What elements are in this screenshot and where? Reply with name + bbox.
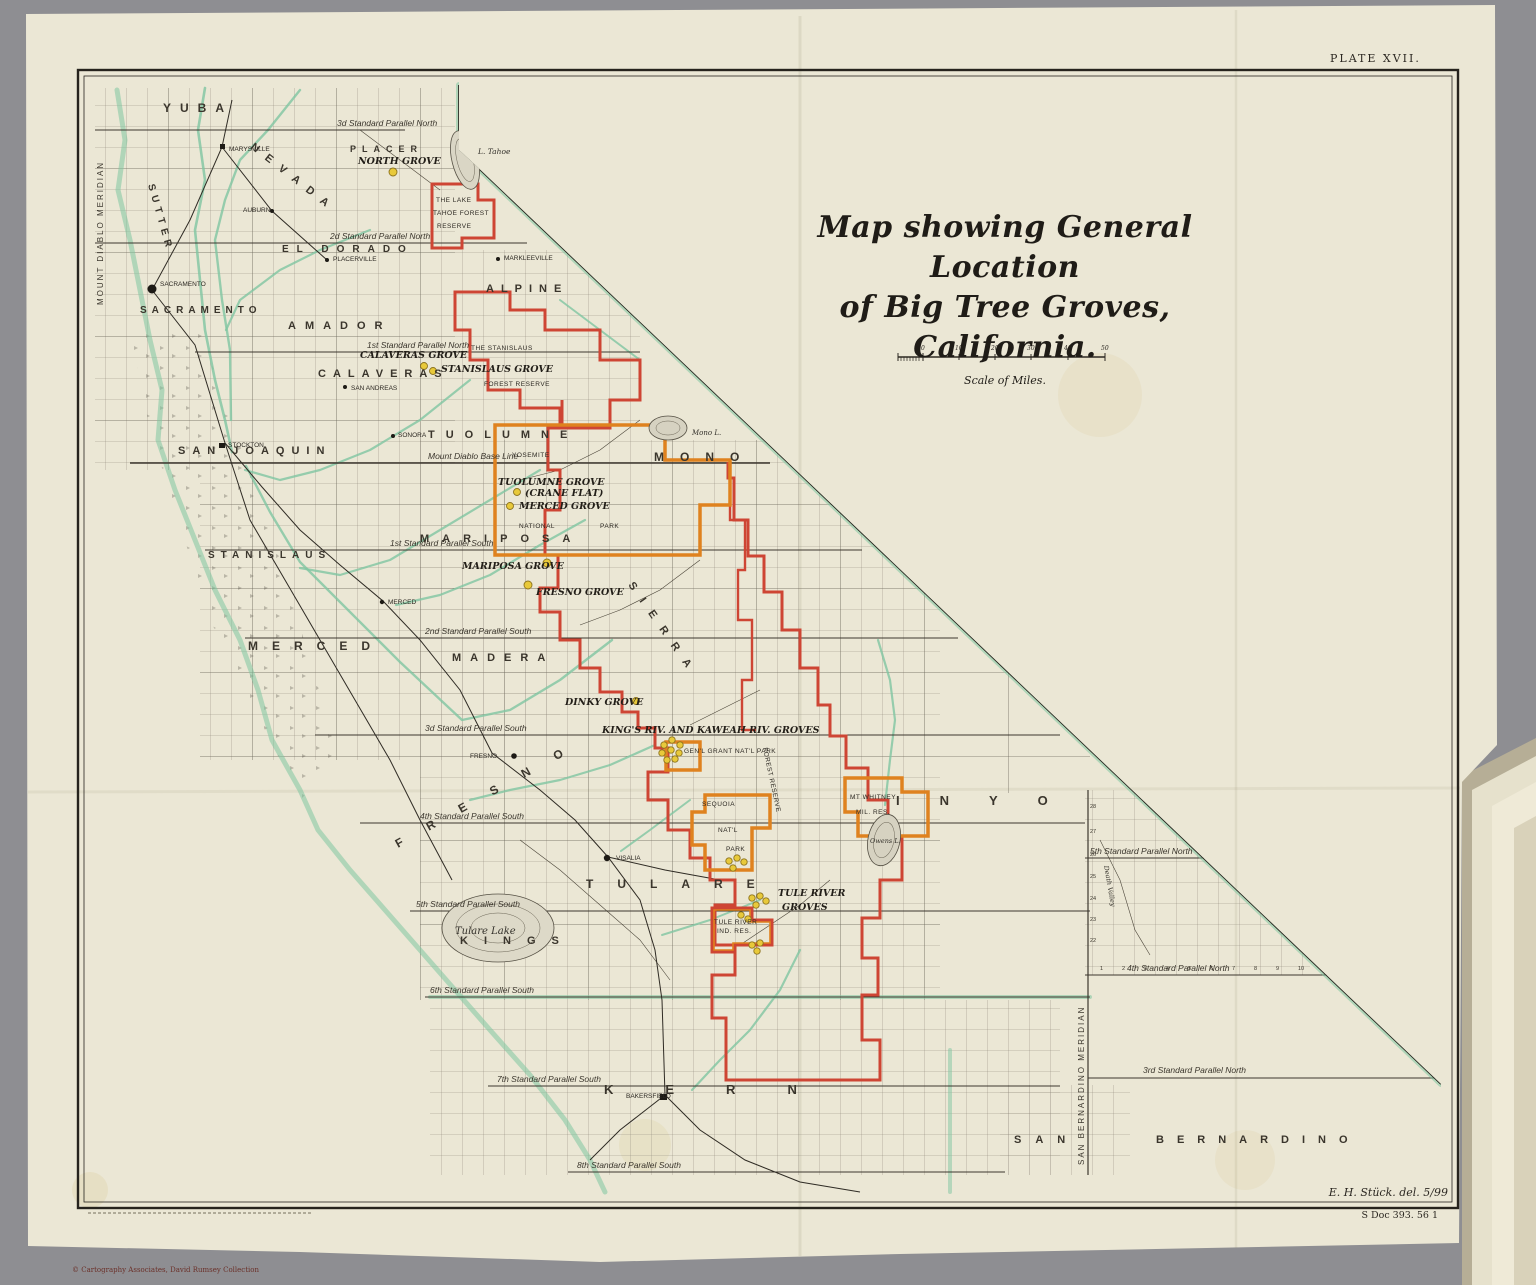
mount-diablo-meridian-label: MOUNT DIABLO MERIDIAN bbox=[96, 161, 105, 305]
owens-lake-label: Owens L. bbox=[870, 837, 901, 845]
tahoe-reserve-label-2: TAHOE FOREST bbox=[433, 210, 489, 217]
tule-river-groves-label-1: TULE RIVER bbox=[778, 888, 846, 899]
county-eldorado: EL DORADO bbox=[282, 244, 414, 255]
svg-text:22: 22 bbox=[1090, 938, 1096, 944]
marysville-label: MARYSVILLE bbox=[229, 146, 270, 153]
collection-copyright: © Cartography Associates, David Rumsey C… bbox=[72, 1266, 259, 1274]
map-canvas: MOUNT DIABLO MERIDIAN SAN BERNARDINO MER… bbox=[0, 0, 1536, 1285]
scale-caption: Scale of Miles. bbox=[790, 374, 1220, 387]
county-inyo: INYO bbox=[896, 793, 1088, 808]
tuolumne-grove-label: TUOLUMNE GROVE bbox=[498, 477, 605, 488]
svg-text:2: 2 bbox=[1122, 966, 1125, 972]
svg-text:26: 26 bbox=[1090, 852, 1096, 858]
delineator-signature: E. H. Stück. del. 5/99 bbox=[1329, 1186, 1448, 1199]
tuolumne-grove-dot bbox=[514, 489, 521, 496]
tulare-lake-label: Tulare Lake bbox=[455, 926, 516, 937]
svg-text:4: 4 bbox=[1166, 966, 1169, 972]
visalia-label: VISALIA bbox=[616, 855, 641, 862]
county-stanislaus: STANISLAUS bbox=[208, 550, 331, 561]
merced-grove-label: MERCED GROVE bbox=[518, 501, 610, 512]
visalia-dot bbox=[604, 855, 610, 861]
marysville-dot bbox=[220, 144, 225, 149]
svg-text:5: 5 bbox=[1188, 966, 1191, 972]
title-line-3: California. bbox=[790, 328, 1220, 368]
stanislaus-reserve-label-1: THE STANISLAUS bbox=[471, 345, 533, 352]
yosemite-label: YOSEMITE bbox=[512, 452, 550, 459]
base-line-label: Mount Diablo Base Line bbox=[428, 451, 519, 461]
placerville-dot bbox=[325, 258, 329, 262]
sequoia-label-2: NAT'L bbox=[718, 827, 738, 834]
county-yuba: YUBA bbox=[163, 101, 233, 115]
placerville-label: PLACERVILLE bbox=[333, 256, 377, 263]
north-grove-label: NORTH GROVE bbox=[357, 156, 442, 167]
fresno-town-dot bbox=[511, 753, 517, 759]
svg-text:25: 25 bbox=[1090, 874, 1096, 880]
north-grove-dot bbox=[389, 168, 397, 176]
parallel-8s-label: 8th Standard Parallel South bbox=[577, 1160, 681, 1170]
san-andreas-dot bbox=[343, 385, 347, 389]
parallel-5s-label: 5th Standard Parallel South bbox=[416, 899, 520, 909]
gen-grant-label: GEN'L GRANT NAT'L PARK bbox=[684, 748, 776, 755]
fresno-grove-label: FRESNO GROVE bbox=[535, 587, 624, 598]
tule-res-label-1: TULE RIVER bbox=[714, 919, 757, 926]
parallel-3s-label: 3d Standard Parallel South bbox=[425, 723, 527, 733]
fresno-town-label: FRESNO bbox=[470, 753, 497, 760]
parallel-2n-label: 2d Standard Parallel North bbox=[329, 231, 430, 241]
parallel-1n-label: 1st Standard Parallel North bbox=[367, 340, 469, 350]
county-merced: MERCED bbox=[248, 639, 384, 653]
sacramento-label: SACRAMENTO bbox=[160, 281, 206, 288]
county-placer: PLACER bbox=[350, 144, 423, 154]
mono-lake bbox=[649, 416, 687, 440]
calaveras-grove-label: CALAVERAS GROVE bbox=[360, 350, 468, 361]
auburn-dot bbox=[270, 209, 274, 213]
svg-text:3: 3 bbox=[1144, 966, 1147, 972]
county-san: SAN bbox=[1014, 1134, 1079, 1146]
county-tulare: TULARE bbox=[586, 877, 779, 891]
markleeville-label: MARKLEEVILLE bbox=[504, 255, 553, 262]
bakersfield-label: BAKERSFIELD bbox=[626, 1093, 671, 1100]
svg-text:27: 27 bbox=[1090, 829, 1096, 835]
book-page-edges bbox=[1462, 738, 1536, 1285]
title-line-1: Map showing General Location bbox=[790, 208, 1220, 288]
printer-imprint bbox=[88, 1212, 313, 1214]
county-alpine: ALPINE bbox=[486, 283, 568, 295]
svg-text:24: 24 bbox=[1090, 896, 1096, 902]
tahoe-reserve-label-1: THE LAKE bbox=[436, 197, 472, 204]
svg-text:23: 23 bbox=[1090, 917, 1096, 923]
county-tuolumne: TUOLUMNE bbox=[428, 429, 578, 441]
sequoia-label-1: SEQUOIA bbox=[702, 801, 735, 808]
parallel-3n-east-label: 3rd Standard Parallel North bbox=[1143, 1065, 1246, 1075]
county-amador: AMADOR bbox=[288, 320, 392, 332]
mono-lake-label: Mono L. bbox=[691, 429, 721, 437]
parallel-6s-label: 6th Standard Parallel South bbox=[430, 985, 534, 995]
svg-text:7: 7 bbox=[1232, 966, 1235, 972]
merced-town-label: MERCED bbox=[388, 599, 416, 606]
lake-tahoe-label: L. Tahoe bbox=[477, 147, 511, 156]
tule-res-label-2: IND. RES. bbox=[717, 928, 751, 935]
document-number: S Doc 393. 56 1 bbox=[1361, 1210, 1438, 1221]
fresno-grove-dot bbox=[524, 581, 532, 589]
county-madera: MADERA bbox=[452, 652, 554, 664]
park-label: PARK bbox=[600, 523, 619, 530]
sequoia-label-3: PARK bbox=[726, 846, 745, 853]
stanislaus-reserve-label-2: FOREST RESERVE bbox=[484, 381, 550, 388]
kings-kaweah-groves-label: KING'S RIV. AND KAWEAH RIV. GROVES bbox=[601, 725, 820, 736]
parallel-2s-label: 2nd Standard Parallel South bbox=[424, 626, 532, 636]
svg-text:8: 8 bbox=[1254, 966, 1257, 972]
plate-number: PLATE XVII. bbox=[1330, 52, 1421, 65]
svg-text:1: 1 bbox=[1100, 966, 1103, 972]
county-bernardino: BERNARDINO bbox=[1156, 1134, 1361, 1146]
mt-whitney-label-2: MIL. RES. bbox=[856, 809, 890, 816]
dinky-grove-label: DINKY GROVE bbox=[564, 697, 644, 708]
svg-text:28: 28 bbox=[1090, 804, 1096, 810]
parallel-7s-label: 7th Standard Parallel South bbox=[497, 1074, 601, 1084]
markleeville-dot bbox=[496, 257, 500, 261]
svg-text:6: 6 bbox=[1210, 966, 1213, 972]
stanislaus-grove-label: STANISLAUS GROVE bbox=[441, 364, 554, 375]
map-title: Map showing General Location of Big Tree… bbox=[790, 208, 1220, 387]
merced-town-dot bbox=[380, 600, 384, 604]
parallel-5n-east-label: 5th Standard Parallel North bbox=[1090, 846, 1193, 856]
county-calaveras: CALAVERAS bbox=[318, 368, 449, 380]
county-sacramento: SACRAMENTO bbox=[140, 305, 261, 316]
stockton-label: STOCKTON bbox=[228, 442, 264, 449]
county-mariposa: MARIPOSA bbox=[420, 533, 583, 545]
tahoe-reserve-label-3: RESERVE bbox=[437, 223, 472, 230]
sonora-label: SONORA bbox=[398, 432, 427, 439]
mt-whitney-label-1: MT WHITNEY bbox=[850, 794, 896, 801]
parallel-4n-east-label: 4th Standard Parallel North bbox=[1127, 963, 1230, 973]
parallel-3n-label: 3d Standard Parallel North bbox=[337, 118, 437, 128]
merced-grove-dot bbox=[507, 503, 514, 510]
svg-text:10: 10 bbox=[1298, 966, 1304, 972]
mariposa-grove-label: MARIPOSA GROVE bbox=[461, 561, 565, 572]
sonora-dot bbox=[391, 434, 395, 438]
svg-text:9: 9 bbox=[1276, 966, 1279, 972]
county-mono: MONO bbox=[654, 450, 755, 464]
auburn-label: AUBURN bbox=[243, 207, 271, 214]
san-andreas-label: SAN ANDREAS bbox=[351, 385, 398, 392]
tuolumne-grove-label-2: (CRANE FLAT) bbox=[525, 488, 603, 499]
title-line-2: of Big Tree Groves, bbox=[790, 288, 1220, 328]
map-scan: MOUNT DIABLO MERIDIAN SAN BERNARDINO MER… bbox=[0, 0, 1536, 1285]
national-label: NATIONAL bbox=[519, 523, 555, 530]
sacramento-dot bbox=[148, 285, 157, 294]
tule-river-groves-label-2: GROVES bbox=[782, 902, 828, 913]
